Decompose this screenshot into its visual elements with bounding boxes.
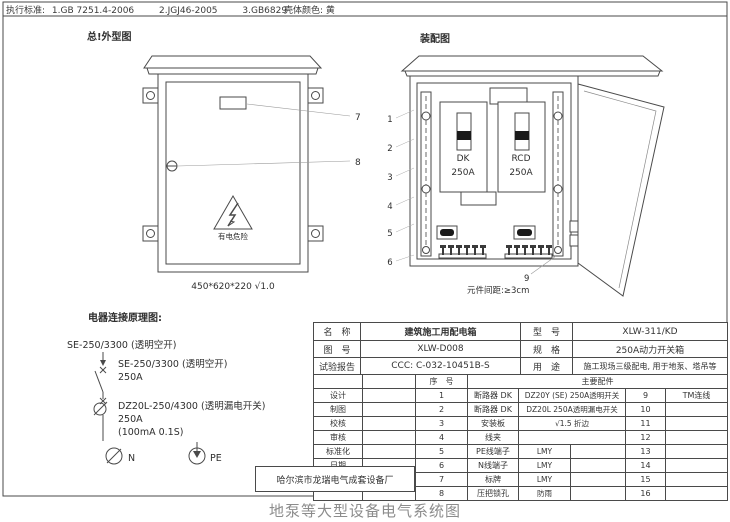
blank-cell [314,375,363,389]
spec-cell: 防雨 [519,487,571,501]
spec-cell: DZ20Y (SE) 250A透明开关 [519,389,626,403]
table-row: 校核 3 安装板 √1.5 折边 11 [314,417,728,431]
no-cell: 6 [416,459,468,473]
part-cell: 标牌 [468,473,519,487]
rcd-rating: 250A [509,168,533,178]
spec-cell: DZ20L 250A透明漏电开关 [519,403,626,417]
pe-symbol [189,442,205,464]
spec-label: 规 格 [521,341,573,358]
svg-text:5: 5 [387,229,392,239]
table-row: 审核 4 线夹 12 [314,431,728,445]
svg-text:4: 4 [387,202,392,212]
svg-text:3: 3 [387,173,392,183]
spec-cell: LMY [519,445,571,459]
outline-dimensions: 450*620*220 √1.0 [191,281,275,292]
spec-cell: LMY [519,473,571,487]
svg-text:6: 6 [387,258,392,268]
part-cell: 压把锁孔 [468,487,519,501]
outline-view-title: 总!外型图 [87,30,132,43]
neutral-symbol [106,448,122,464]
role-cell: 制图 [314,403,363,417]
cabinet-body [158,74,308,272]
assembly-callouts: 1 2 3 4 5 6 [387,115,392,268]
no-cell: 4 [416,431,468,445]
test-report-label: 试验报告 [314,358,361,375]
no-cell: 3 [416,417,468,431]
no2-cell: 15 [626,473,666,487]
no-cell: 5 [416,445,468,459]
cabinet-roof [144,56,321,68]
no-cell: 1 [416,389,468,403]
cabinet-roof-band [147,68,318,74]
no2-cell: 10 [626,403,666,417]
bottom-wire-duct [461,192,496,205]
model-label: 型 号 [521,323,573,341]
assembly-roof-band [405,71,660,76]
part-cell: 安装板 [468,417,519,431]
breaker2-rating: 250A [118,414,143,425]
serial-header: 序 号 [416,375,468,389]
no2-cell: 16 [626,487,666,501]
wire-arrow [100,360,106,366]
role-cell: 校核 [314,417,363,431]
part2-cell [666,445,728,459]
schematic-title: 电器连接原理图: [88,311,162,324]
blank-cell [571,473,626,487]
title-block-table: 名 称 建筑施工用配电箱 型 号 XLW-311/KD 图 号 XLW-D008… [313,322,728,375]
part-cell: N线端子 [468,459,519,473]
breaker2-leakage: (100mA 0.1S) [118,427,183,438]
no-cell: 2 [416,403,468,417]
callout-9: 9 [524,274,529,284]
role-cell: 标准化 [314,445,363,459]
blank-cell [571,487,626,501]
role-cell: 设计 [314,389,363,403]
no2-cell: 9 [626,389,666,403]
role-cell: 审核 [314,431,363,445]
no-cell: 7 [416,473,468,487]
callout-7: 7 [355,113,361,123]
table-row: 标准化 5 PE线端子 LMY 13 [314,445,728,459]
breaker1-rating: 250A [118,372,143,383]
blank-cell [363,431,416,445]
breaker1-contact [95,371,103,392]
no2-cell: 11 [626,417,666,431]
usage-value: 施工现场三级配电, 用于地泵、塔吊等 [573,358,728,375]
spacing-note: 元件间距:≥3cm [467,285,529,296]
drawing-sheet: 执行标准: 1.GB 7251.4-2006 2.JGJ46-2005 3.GB… [0,0,730,522]
spec-cell: √1.5 折边 [519,417,626,431]
part2-cell: TM连线 [666,389,728,403]
callout-8: 8 [355,158,361,168]
part2-cell [666,417,728,431]
drawing-no-value: XLW-D008 [361,341,521,358]
blank-cell [571,459,626,473]
parts-header: 主要配件 [468,375,728,389]
spec-cell: LMY [519,459,571,473]
table-row: 制图 2 断路器 DK DZ20L 250A透明漏电开关 10 [314,403,728,417]
svg-text:1: 1 [387,115,392,125]
model-value: XLW-311/KD [573,323,728,341]
drawing-no-label: 图 号 [314,341,361,358]
blank-cell [363,445,416,459]
figure-caption: 地泵等大型设备电气系统图 [0,500,730,521]
dk-breaker [440,102,487,192]
test-report-value: CCC: C-032-10451B-S [361,358,521,375]
blank-cell [363,375,416,389]
part-cell: 断路器 DK [468,403,519,417]
rcd-label: RCD [511,154,530,164]
part2-cell [666,403,728,417]
rcd-breaker [498,102,545,192]
name-value: 建筑施工用配电箱 [361,323,521,341]
part2-cell [666,487,728,501]
breaker1-model: SE-250/3300 (透明空开) [118,358,227,370]
factory-name-box: 哈尔滨市龙瑞电气成套设备厂 [255,466,415,492]
schematic-top-label: SE-250/3300 (透明空开) [67,339,176,351]
neutral-label: N [128,453,135,464]
no-cell: 8 [416,487,468,501]
part-cell: 断路器 DK [468,389,519,403]
dk-label: DK [457,154,471,164]
assembly-view-title: 装配图 [419,32,450,45]
name-label: 名 称 [314,323,361,341]
blank-cell [363,389,416,403]
blank-cell [571,445,626,459]
part2-cell [666,459,728,473]
part2-cell [666,473,728,487]
no2-cell: 12 [626,431,666,445]
no2-cell: 13 [626,445,666,459]
hazard-label: 有电危险 [218,231,248,241]
no2-cell: 14 [626,459,666,473]
spec-value: 250A动力开关箱 [573,341,728,358]
part-cell: PE线端子 [468,445,519,459]
pe-label: PE [210,453,222,464]
blank-cell [363,403,416,417]
blank-cell [363,417,416,431]
breaker2-model: DZ20L-250/4300 (透明漏电开关) [118,400,265,412]
open-door [578,84,664,296]
table-row: 设计 1 断路器 DK DZ20Y (SE) 250A透明开关 9 TM连线 [314,389,728,403]
svg-text:2: 2 [387,144,392,154]
part-cell: 线夹 [468,431,519,445]
part2-cell [666,431,728,445]
assembly-roof [402,56,662,71]
spec-cell [519,431,626,445]
dk-rating: 250A [451,168,475,178]
usage-label: 用 途 [521,358,573,375]
